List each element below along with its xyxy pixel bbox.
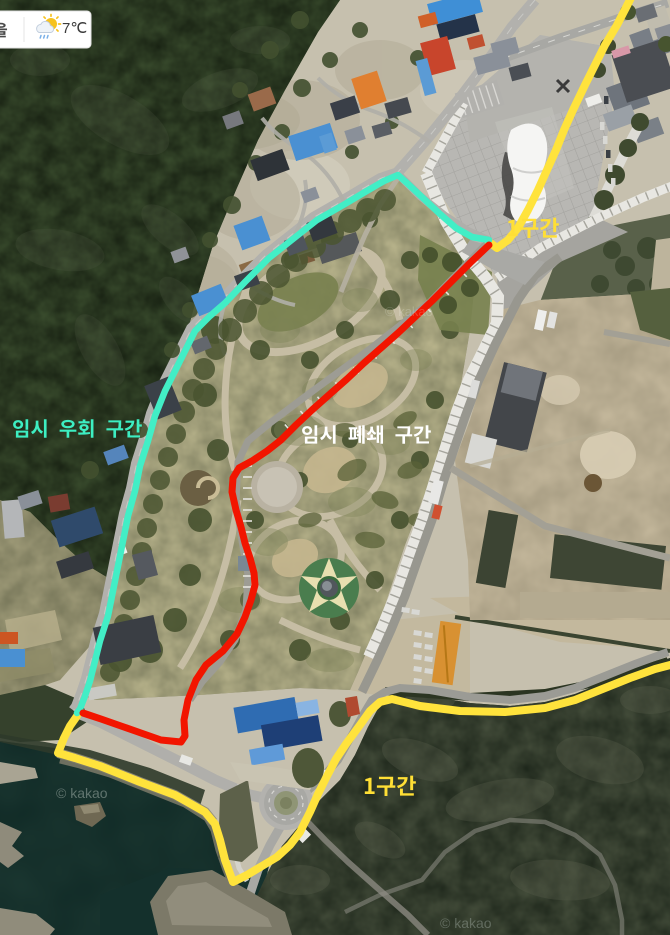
- svg-text:© kakao: © kakao: [440, 915, 492, 931]
- svg-text:© kakao: © kakao: [385, 304, 433, 319]
- svg-text:© kakao: © kakao: [56, 785, 108, 801]
- svg-text:7℃: 7℃: [62, 20, 87, 37]
